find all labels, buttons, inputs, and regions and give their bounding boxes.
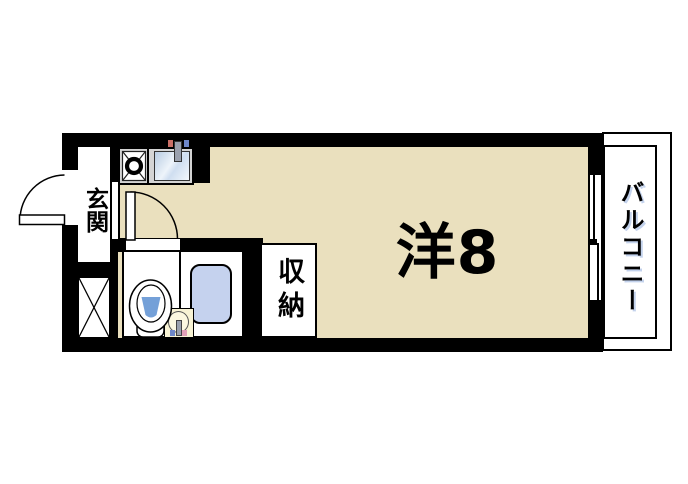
- window-wall-pier-bottom: [588, 300, 603, 352]
- cold-tap-icon: [170, 330, 175, 336]
- bathtub-icon: [190, 264, 232, 324]
- hot-tap-icon: [182, 330, 187, 336]
- entrance-wall: [110, 147, 118, 180]
- cold-tap-icon: [184, 140, 189, 147]
- balcony-label: バルコニー: [608, 160, 652, 335]
- room-label: 洋8: [385, 208, 510, 286]
- stove-cell: [120, 149, 149, 183]
- window-wall-pier-top: [588, 133, 603, 175]
- kitchen-sink-icon: [154, 151, 190, 181]
- window-pane-line: [593, 175, 595, 243]
- kitchen-counter: [118, 147, 194, 185]
- sink-faucet-icon: [174, 141, 182, 162]
- entrance-door-arc-icon: [20, 175, 65, 220]
- entrance-door-leaf-icon: [20, 215, 65, 225]
- hot-tap-icon: [168, 140, 173, 147]
- entrance-opening: [62, 170, 78, 225]
- bathroom-divider-wall: [179, 252, 181, 309]
- storage-label: 収納: [275, 257, 302, 325]
- bathroom: [122, 250, 244, 338]
- balcony-window-icon: [588, 175, 603, 300]
- washbasin-icon: [164, 308, 194, 338]
- door-jamb-wall: [110, 180, 120, 241]
- storage-closet: 収納: [260, 243, 317, 338]
- shaft-icon: [78, 277, 110, 338]
- kitchen-wall-pier: [194, 147, 210, 183]
- window-latch-icon: [588, 239, 597, 245]
- window-pane-line: [597, 243, 599, 300]
- entrance-label: 玄関: [78, 181, 110, 239]
- floor-plan: 収納 バルコニー 玄関 洋8: [0, 0, 688, 484]
